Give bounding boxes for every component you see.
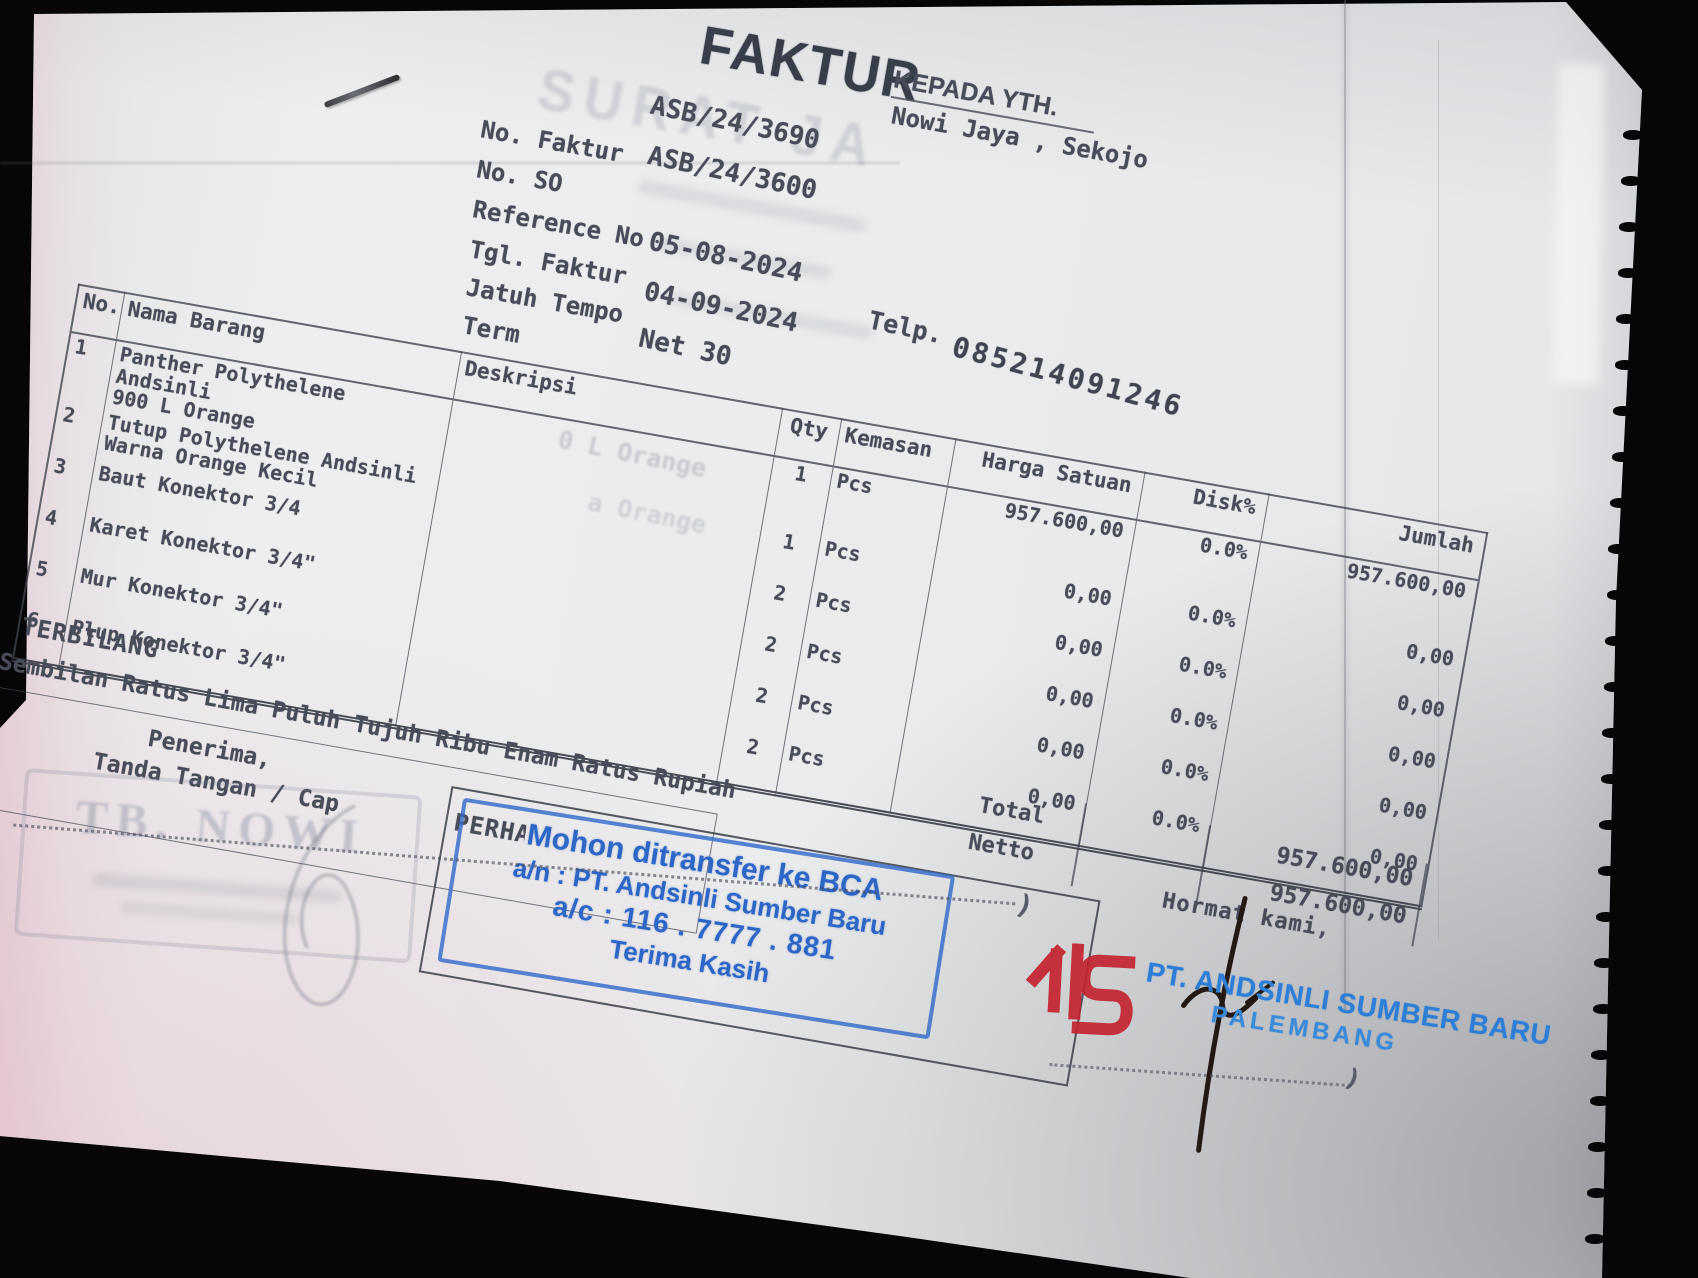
telp-label: Telp.	[866, 305, 946, 349]
perforation-notch	[1605, 636, 1625, 646]
phone-number-stamp: 085214091246	[949, 330, 1188, 424]
company-logo-icon	[1019, 941, 1148, 1055]
perforation-notch	[1616, 314, 1636, 324]
perforation-notch	[1621, 176, 1641, 186]
perforation-notch	[1601, 774, 1621, 784]
perforation-notch	[1596, 912, 1616, 922]
perforation-notch	[1619, 222, 1639, 232]
scanned-invoice: SURAT JA 0 L Orange a Orange FAKTUR KEPA…	[0, 0, 1698, 1278]
perforation-notch	[1591, 1050, 1611, 1060]
ghost-smudge	[91, 873, 341, 903]
perforation-notch	[1588, 1142, 1608, 1152]
field-value-term: Net 30	[636, 323, 734, 372]
field-label-term: Term	[460, 311, 522, 349]
perforation-notch	[1610, 498, 1630, 508]
perforation-notch	[1599, 820, 1619, 830]
perforation-notch	[1593, 1004, 1613, 1014]
page-title: FAKTUR	[696, 14, 926, 114]
perforation-notch	[1612, 452, 1632, 462]
perforation-notch	[1587, 1188, 1607, 1198]
perforation-notch	[1607, 590, 1627, 600]
pen-paren-mark-2: )	[1341, 1062, 1365, 1094]
perforation-notch	[1594, 958, 1614, 968]
printed-content: SURAT JA 0 L Orange a Orange FAKTUR KEPA…	[0, 0, 1698, 1278]
perforation-notch	[1602, 728, 1622, 738]
col-header-no: No.	[71, 285, 125, 340]
perforation-notch	[1598, 866, 1618, 876]
perforation-notch	[1615, 360, 1635, 370]
perforation-notch	[1618, 268, 1638, 278]
perforation-notch	[1604, 682, 1624, 692]
field-label-no-so: No. SO	[475, 155, 565, 198]
perforation-notch	[1585, 1234, 1605, 1244]
perforation-notch	[1613, 406, 1633, 416]
perforation-notch	[1608, 544, 1628, 554]
field-value-tgl-faktur: 05-08-2024	[646, 227, 805, 289]
ghost-smudge	[120, 901, 300, 926]
perforation-notch	[1623, 130, 1643, 140]
perforation-notch	[1590, 1096, 1610, 1106]
